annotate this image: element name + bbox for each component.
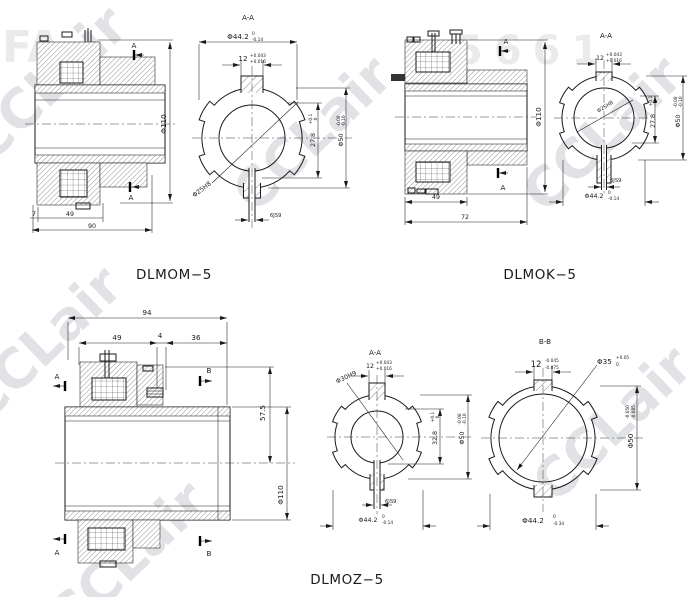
bore-label: Φ30H9 — [335, 370, 358, 386]
dim-dia50-sup: -0.050 — [625, 405, 631, 419]
dim-dia110: Φ110 — [159, 114, 168, 134]
dim-32-8-sub: 0 — [435, 415, 441, 418]
dim-dia44-sub: -0.14 — [252, 37, 263, 43]
model-label-dlmok: DLMOK−5 — [503, 267, 576, 283]
bore-label: Φ25H8 — [191, 180, 212, 199]
technical-drawing-canvas: FA 5661 CCLair CCLair CCLair CCLair CCLa… — [0, 0, 690, 597]
section-cut-letter: B — [207, 549, 212, 558]
dim-dia50: Φ50 — [338, 134, 345, 147]
dim-12: 12 — [366, 363, 374, 370]
dim-dia44-sub: -0.14 — [608, 196, 619, 202]
dim-dia44-sub: -0.14 — [382, 520, 393, 526]
dim-12: 12 — [531, 360, 542, 370]
dim-32-8: 32.8 — [432, 431, 439, 445]
dim-12: 12 — [238, 54, 247, 63]
dim-dia44: Φ44.2 — [585, 193, 604, 200]
drawing-svg: FA 5661 CCLair CCLair CCLair CCLair CCLa… — [0, 0, 690, 597]
keyslot-label: 6JS9 — [610, 178, 621, 184]
dim-dia50-sub: -0.085 — [631, 405, 637, 419]
keyslot-label: 6JS9 — [270, 213, 281, 219]
dim-dia44-sup: 0 — [252, 31, 255, 37]
section-cut-letter: A — [129, 193, 134, 202]
dim-12-sub: +0.016 — [606, 58, 622, 64]
dim-12-sup: +0.043 — [376, 360, 392, 366]
dim-12-sup: +0.043 — [606, 52, 622, 58]
dim-dia50: Φ50 — [675, 115, 682, 128]
section-title: B-B — [539, 337, 551, 346]
section-cut-letter: A — [132, 41, 137, 50]
dim-dia50-sub: -0.10 — [341, 115, 347, 126]
watermark-code: 5661 — [455, 28, 610, 74]
dim-dia44-sub: -0.34 — [553, 521, 564, 527]
bore-sub: 0 — [616, 362, 619, 368]
section-title: A-A — [242, 13, 254, 22]
dim-72: 72 — [461, 214, 469, 221]
dim-dia110: Φ110 — [276, 485, 285, 505]
dim-12-sup: -0.045 — [545, 358, 559, 364]
dim-dia50: Φ50 — [626, 433, 635, 448]
dim-dia44: Φ44.2 — [522, 516, 544, 525]
dim-dia44-sup: 0 — [553, 514, 556, 520]
bore-label: Φ35 — [597, 357, 612, 366]
dim-49: 49 — [432, 194, 440, 201]
model-label-dlmom: DLMOM−5 — [136, 267, 212, 283]
dim-57-5: 57.5 — [258, 405, 267, 421]
dim-49: 49 — [112, 333, 122, 342]
section-cut-letter: A — [501, 183, 506, 192]
dim-36: 36 — [191, 333, 201, 342]
dim-27-8-sub: 0 — [313, 117, 319, 120]
section-cut-letter: A — [504, 37, 509, 46]
dim-12-sub: +0.016 — [376, 366, 392, 372]
dim-27-8: 27.8 — [310, 133, 317, 147]
model-label-dlmoz: DLMOZ−5 — [310, 572, 384, 588]
bore-sup: +0.05 — [616, 355, 629, 361]
dim-27-8: 27.8 — [650, 114, 657, 128]
dim-94: 94 — [142, 308, 152, 317]
dim-90: 90 — [88, 223, 96, 230]
dim-dia44: Φ44.2 — [359, 517, 378, 524]
dim-dia110: Φ110 — [534, 107, 543, 127]
dim-dia44-sup: 0 — [608, 190, 611, 196]
section-title: A-A — [369, 348, 381, 357]
dim-12-sub: -0.075 — [545, 365, 559, 371]
dim-dia50-sub: -0.10 — [678, 96, 684, 107]
dim-27-8-sub: 0 — [653, 99, 659, 102]
dim-12: 12 — [596, 55, 604, 62]
keyslot-label: 6JS9 — [385, 499, 396, 505]
dim-12-sub: +0.016 — [250, 59, 266, 65]
dim-dia50: Φ50 — [459, 432, 466, 445]
dim-4: 4 — [158, 331, 163, 340]
dim-12-sup: +0.043 — [250, 53, 266, 59]
section-title: A-A — [600, 31, 612, 40]
dim-dia44-sup: 0 — [382, 514, 385, 520]
dim-dia44: Φ44.2 — [227, 32, 249, 41]
dim-7: 7 — [32, 211, 36, 218]
dim-dia50-sub: -0.10 — [462, 413, 468, 424]
section-cut-letter: A — [55, 548, 60, 557]
section-cut-letter: B — [207, 366, 212, 375]
dim-49: 49 — [66, 211, 74, 218]
section-cut-letter: A — [55, 372, 60, 381]
